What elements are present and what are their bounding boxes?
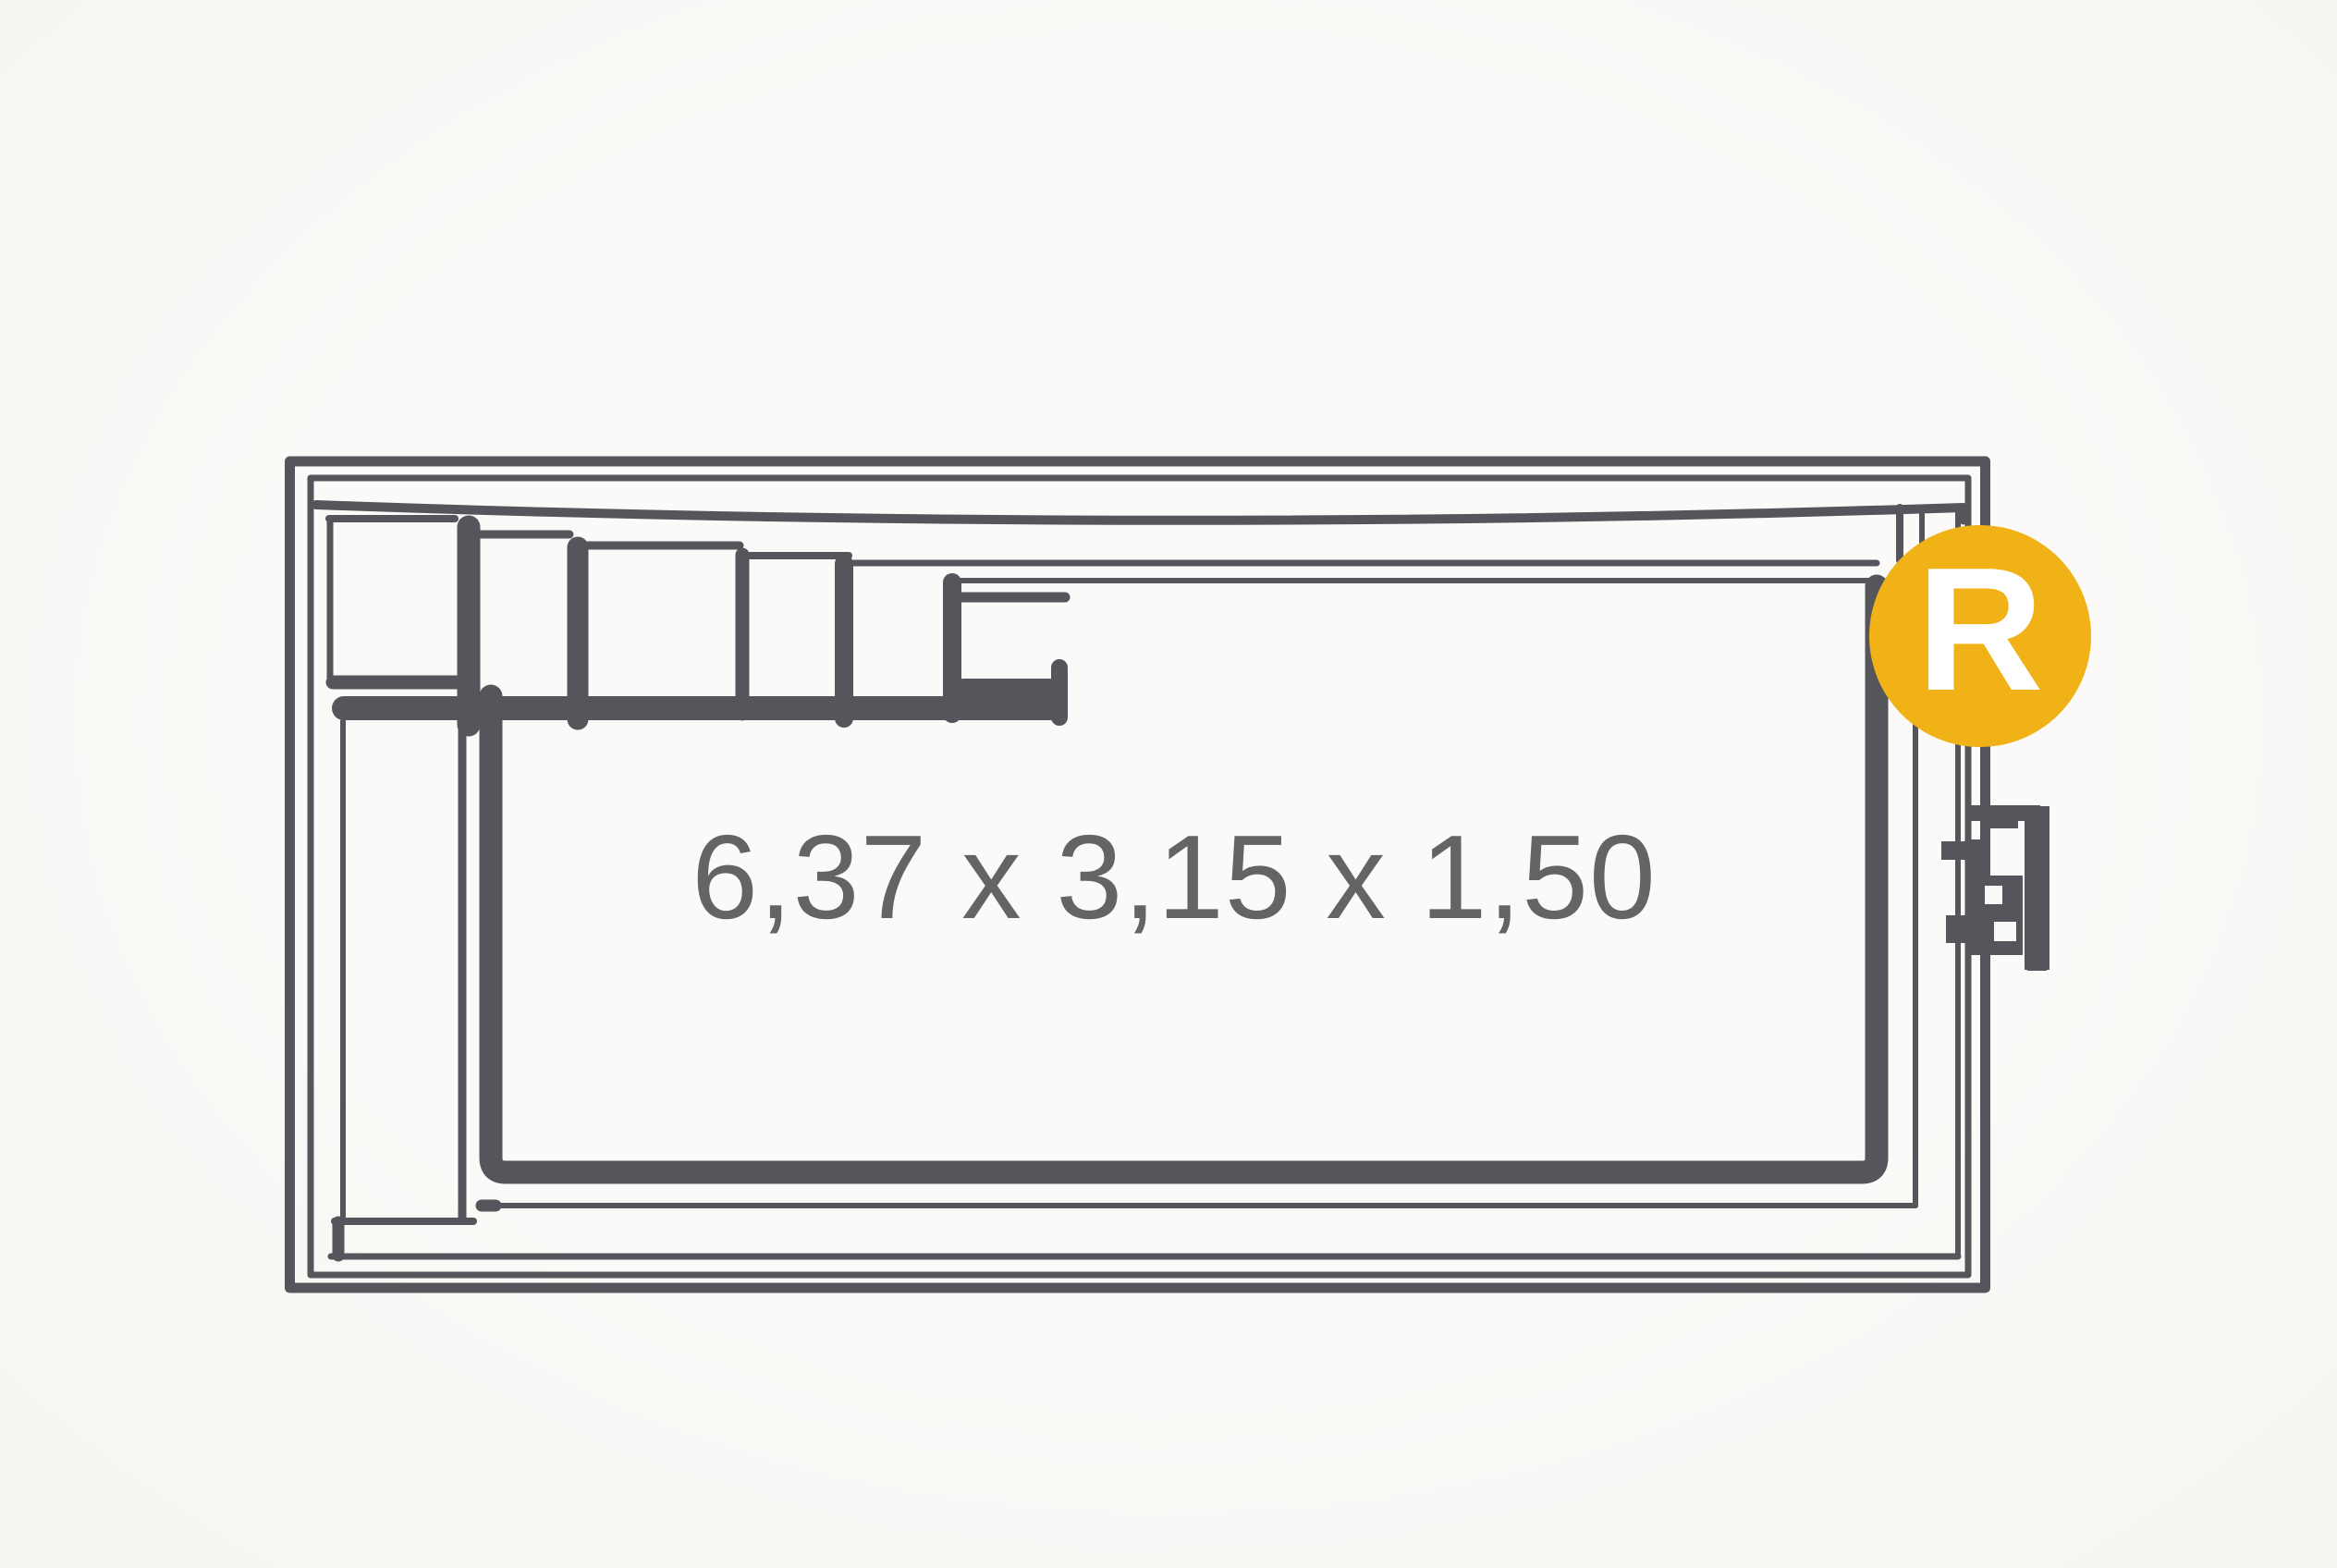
r-brand-badge: R xyxy=(1869,525,2091,747)
pool-plan-canvas: 6,37 x 3,15 x 1,50 R xyxy=(0,0,2337,1568)
pool-sketch-drawing xyxy=(0,0,2337,1568)
roman-steps xyxy=(329,519,1877,725)
side-bench-column xyxy=(335,721,473,1256)
badge-letter: R xyxy=(1916,542,2043,717)
pool-dimensions-label: 6,37 x 3,15 x 1,50 xyxy=(471,818,1877,937)
